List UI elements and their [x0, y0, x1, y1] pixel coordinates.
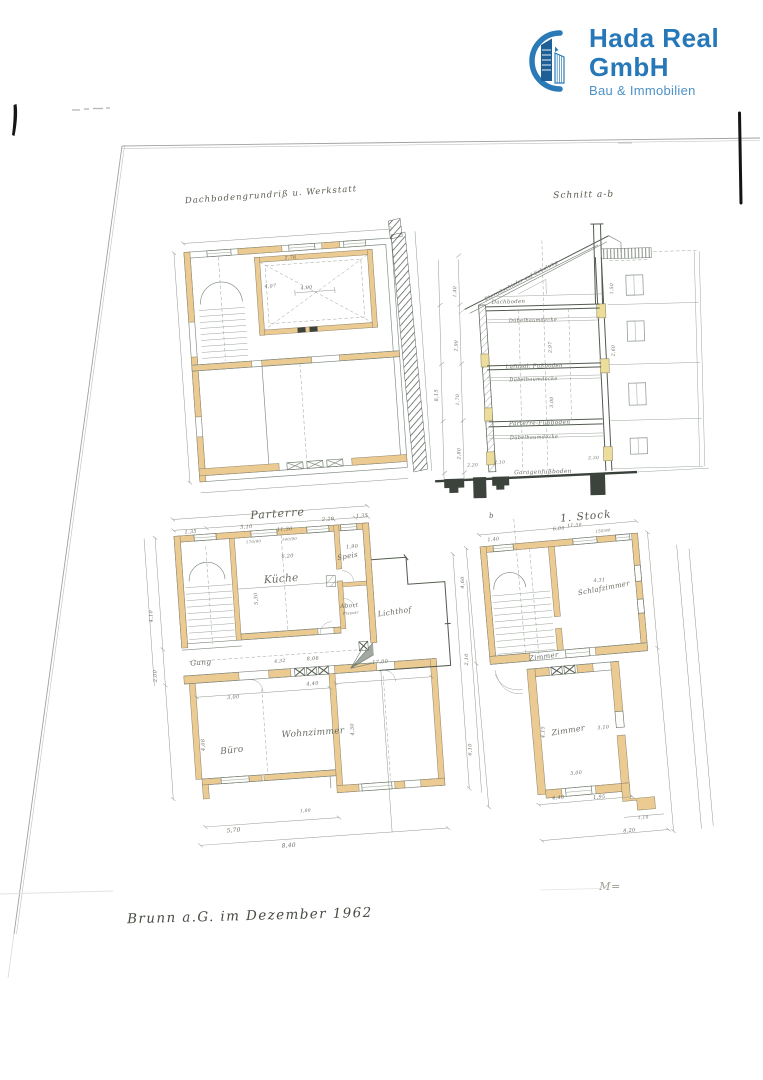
floor-label: Dübelbaumdecke [508, 376, 557, 383]
dimension-text: 2,20 [321, 516, 335, 523]
floor-label: Dachboden [491, 299, 526, 306]
section-annotations: Eternitschiefer auf SchalungDachbodenDüb… [430, 258, 620, 478]
parterre-plan-drawing: Parterre KücheSpeisAbortPissoirGangLicht… [141, 494, 484, 858]
dimension-text: 1,00 [300, 809, 311, 815]
dimension-text: 1,35 [184, 529, 197, 536]
rear-step-walls [621, 781, 655, 812]
dimension-text: 2,30 [587, 456, 599, 461]
parterre-title: Parterre [249, 505, 305, 522]
dimension-text: 1,40 [452, 286, 458, 297]
roof-note: Eternitschiefer auf Schalung [483, 260, 559, 303]
page-edge-artifact [740, 113, 742, 203]
dimension-text: 2,97 [548, 341, 554, 353]
parapet-hatch [601, 248, 651, 259]
room-label: Büro [219, 744, 245, 757]
dimension-text: 2,10 [464, 653, 470, 667]
dimension-text: 140/90 [282, 536, 298, 542]
dimension-text: 4,15 [540, 726, 546, 739]
page-border [0, 138, 760, 978]
first-floor-plan-drawing: 1. Stock b 11,501,406,00150/90Schlafzimm… [447, 495, 714, 851]
first-floor-title: 1. Stock [560, 508, 612, 524]
section-marker-b: b [489, 512, 495, 520]
room-label: Pissoir [342, 610, 360, 616]
dimension-text: 17,00 [372, 659, 389, 666]
dimension-text: 2,78 [283, 255, 296, 262]
room-label: Lichthof [376, 605, 413, 619]
dimension-text: 4,30 [350, 723, 356, 737]
gang-window-marks [294, 666, 328, 676]
dimension-text: 3,10 [597, 724, 609, 731]
dimension-text: 4,48 [551, 795, 565, 802]
dimension-text: 1,35 [356, 513, 369, 520]
first-floor-window-marks [551, 665, 576, 675]
stove-mark [326, 575, 336, 587]
dimension-text: 5,30 [253, 592, 259, 605]
plan-sheet: Dachbodengrundriß u. Werkstatt 2,784,074… [0, 0, 763, 1080]
fold-line [0, 891, 113, 894]
scan-artifacts [12, 104, 741, 890]
floor-label: Dübelbaumdecke [508, 317, 557, 324]
dimension-text: 2,80 [456, 448, 462, 460]
dimension-text: 2,00 [152, 669, 158, 683]
dimension-text: 5,10 [240, 524, 253, 531]
dimension-text: 2,90 [454, 340, 460, 352]
attic-plan-drawing: Dachbodengrundriß u. Werkstatt 2,784,074… [168, 180, 432, 493]
dimension-text: 4,00 [300, 285, 313, 292]
dimension-text: 170/90 [246, 538, 262, 544]
dimension-text: 4,60 [460, 576, 466, 590]
room-label: Küche [262, 572, 298, 586]
dimension-text: 1,50 [609, 283, 615, 294]
dimension-text: 2,60 [611, 345, 617, 357]
dimension-text: 6,10 [468, 743, 474, 756]
floor-label: Luftisol. Fußboden [505, 363, 563, 371]
dimension-text: 3,00 [570, 770, 582, 777]
section-title: Schnitt a-b [553, 190, 614, 202]
dimension-text: 3,00 [227, 694, 240, 701]
dimension-text: 8,20 [623, 827, 636, 834]
dimension-text: 5,70 [226, 827, 241, 834]
dimension-text: 4,07 [263, 283, 277, 290]
dimension-text: 1,40 [487, 536, 499, 543]
faint-line-artifact [540, 889, 600, 891]
dimension-text: 150/90 [595, 527, 611, 533]
dimension-text: 2,20 [466, 463, 478, 468]
section-left-wall [479, 305, 496, 472]
dimension-text: 1,90 [346, 544, 359, 551]
room-label: Zimmer [550, 723, 586, 737]
dimension-text: 4,31 [592, 577, 605, 584]
dimension-text: 8,40 [282, 843, 297, 850]
floor-label: Dübelbaumdecke [509, 434, 558, 441]
dimension-text: 1,95 [593, 794, 606, 801]
dimension-text: 1,10 [638, 815, 649, 821]
pen-mark-artifact [12, 104, 17, 136]
scale-note: M= [598, 880, 620, 893]
dimension-text: 2,10 [493, 460, 505, 465]
footer-date-note: Brunn a.G. im Dezember 1962 [126, 905, 373, 927]
dimension-text: 3,00 [549, 396, 555, 407]
dimension-text: 1,70 [455, 394, 461, 405]
dimension-text: 6,20 [281, 553, 294, 560]
room-label: Gang [190, 657, 212, 667]
attic-plan-title: Dachbodengrundriß u. Werkstatt [184, 184, 358, 206]
dimension-text: 8,15 [434, 389, 440, 401]
dimension-text: 4,40 [305, 681, 319, 688]
scanned-plan-page: Hada Real GmbH Bau & Immobilien [0, 0, 763, 1080]
dimension-text: 4,10 [148, 609, 154, 623]
dimension-text: 4,32 [273, 658, 286, 665]
dimension-text: 8,06 [307, 656, 320, 663]
dimension-text: 6,00 [553, 525, 565, 532]
dash-marks-artifact [72, 108, 110, 110]
dimension-text: 11,30 [277, 526, 294, 533]
floor-label: Parterre-Fußboden [508, 420, 571, 428]
dimension-text: 4,08 [200, 739, 206, 753]
section-drawing: Schnitt a-b Eternitschiefer auf Schalung… [428, 187, 710, 499]
